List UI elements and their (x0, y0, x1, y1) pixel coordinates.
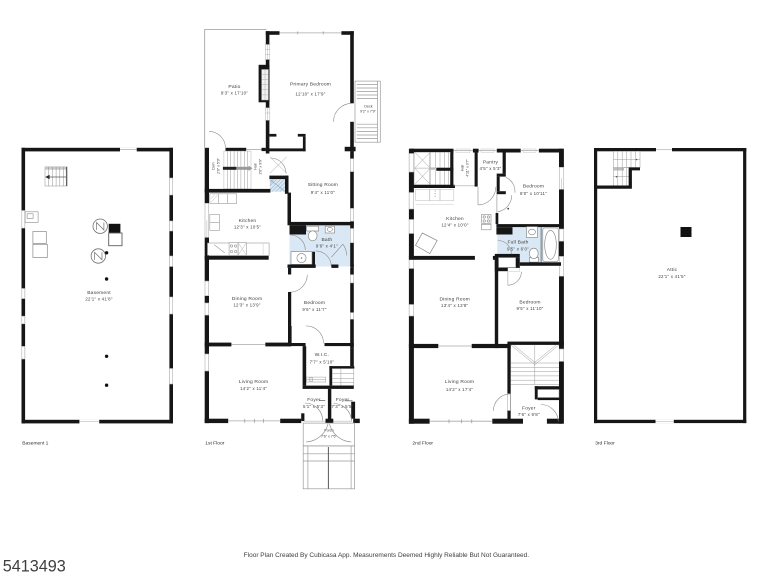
svg-text:7'3" x 5'5": 7'3" x 5'5" (332, 404, 354, 409)
svg-text:Kitchen: Kitchen (446, 216, 464, 222)
svg-text:2'6" x 9'9": 2'6" x 9'9" (258, 158, 262, 174)
svg-text:Dining Room: Dining Room (439, 296, 469, 302)
svg-text:5'1" x 5'3": 5'1" x 5'3" (303, 404, 325, 409)
svg-text:9'5" x 11'10": 9'5" x 11'10" (516, 306, 543, 311)
svg-text:Basement 1: Basement 1 (22, 441, 48, 447)
svg-text:Basement: Basement (87, 290, 111, 296)
svg-text:12'3" x 13'9": 12'3" x 13'9" (233, 303, 261, 308)
svg-text:12'3" x 10'5": 12'3" x 10'5" (234, 225, 262, 230)
svg-text:Bath: Bath (321, 237, 332, 243)
svg-text:9'6" x 11'7": 9'6" x 11'7" (302, 307, 327, 312)
svg-text:Primary Bedroom: Primary Bedroom (290, 81, 331, 87)
svg-text:2'6" x 5'9": 2'6" x 5'9" (217, 157, 221, 173)
svg-text:Full Bath: Full Bath (507, 240, 528, 246)
svg-text:Bedroom: Bedroom (523, 183, 544, 189)
svg-text:22'1" x 41'5": 22'1" x 41'5" (658, 274, 686, 279)
svg-text:7'6" x 9'8": 7'6" x 9'8" (518, 412, 540, 417)
svg-text:7'6" x 7'6": 7'6" x 7'6" (321, 435, 337, 439)
svg-text:Kitchen: Kitchen (239, 218, 257, 224)
svg-text:Floor Plan Created By Cubicasa: Floor Plan Created By Cubicasa App. Meas… (244, 552, 530, 559)
svg-text:9'2" x 7'9": 9'2" x 7'9" (360, 110, 376, 114)
svg-text:1st Floor: 1st Floor (205, 441, 224, 447)
svg-text:Foyer: Foyer (336, 397, 350, 403)
svg-text:Foyer: Foyer (307, 397, 321, 403)
svg-text:Foyer: Foyer (522, 405, 536, 411)
svg-text:Hall: Hall (461, 165, 465, 171)
svg-text:12'4" x 10'0": 12'4" x 10'0" (441, 222, 469, 227)
svg-text:22'1" x 41'8": 22'1" x 41'8" (85, 296, 113, 301)
svg-text:W.I.C.: W.I.C. (315, 352, 330, 358)
svg-text:7'7" x 5'10": 7'7" x 5'10" (310, 359, 335, 364)
svg-text:Dwn: Dwn (212, 162, 216, 169)
svg-text:9'3" x 17'10": 9'3" x 17'10" (221, 91, 249, 96)
svg-text:Bedroom: Bedroom (519, 299, 540, 305)
svg-text:4'11" x 3'7": 4'11" x 3'7" (466, 159, 470, 177)
svg-text:8'0" x 10'11": 8'0" x 10'11" (520, 191, 547, 196)
svg-text:13'4" x 13'8": 13'4" x 13'8" (441, 303, 469, 308)
svg-text:Pantry: Pantry (483, 160, 499, 166)
svg-text:9'4" x 11'0": 9'4" x 11'0" (311, 190, 336, 195)
svg-text:3rd Floor: 3rd Floor (595, 441, 615, 447)
svg-text:Sitting Room: Sitting Room (308, 182, 338, 188)
svg-text:5413493: 5413493 (3, 557, 66, 575)
svg-text:Deck: Deck (364, 105, 372, 109)
svg-text:14'2" x 11'4": 14'2" x 11'4" (240, 386, 267, 391)
svg-text:4'5" x 5'3": 4'5" x 5'3" (480, 166, 502, 171)
svg-text:Dining Room: Dining Room (232, 296, 262, 302)
svg-text:2nd Floor: 2nd Floor (412, 441, 433, 447)
svg-text:Hall: Hall (254, 163, 258, 169)
svg-text:Living Room: Living Room (239, 379, 268, 385)
svg-text:Patio: Patio (228, 84, 240, 90)
svg-text:12'10" x 17'9": 12'10" x 17'9" (295, 92, 325, 97)
svg-text:9'6" x 4'1": 9'6" x 4'1" (316, 243, 338, 248)
svg-text:Attic: Attic (667, 267, 678, 273)
svg-text:Bedroom: Bedroom (304, 300, 325, 306)
svg-text:Living Room: Living Room (445, 379, 474, 385)
svg-text:14'2" x 17'4": 14'2" x 17'4" (446, 387, 474, 392)
